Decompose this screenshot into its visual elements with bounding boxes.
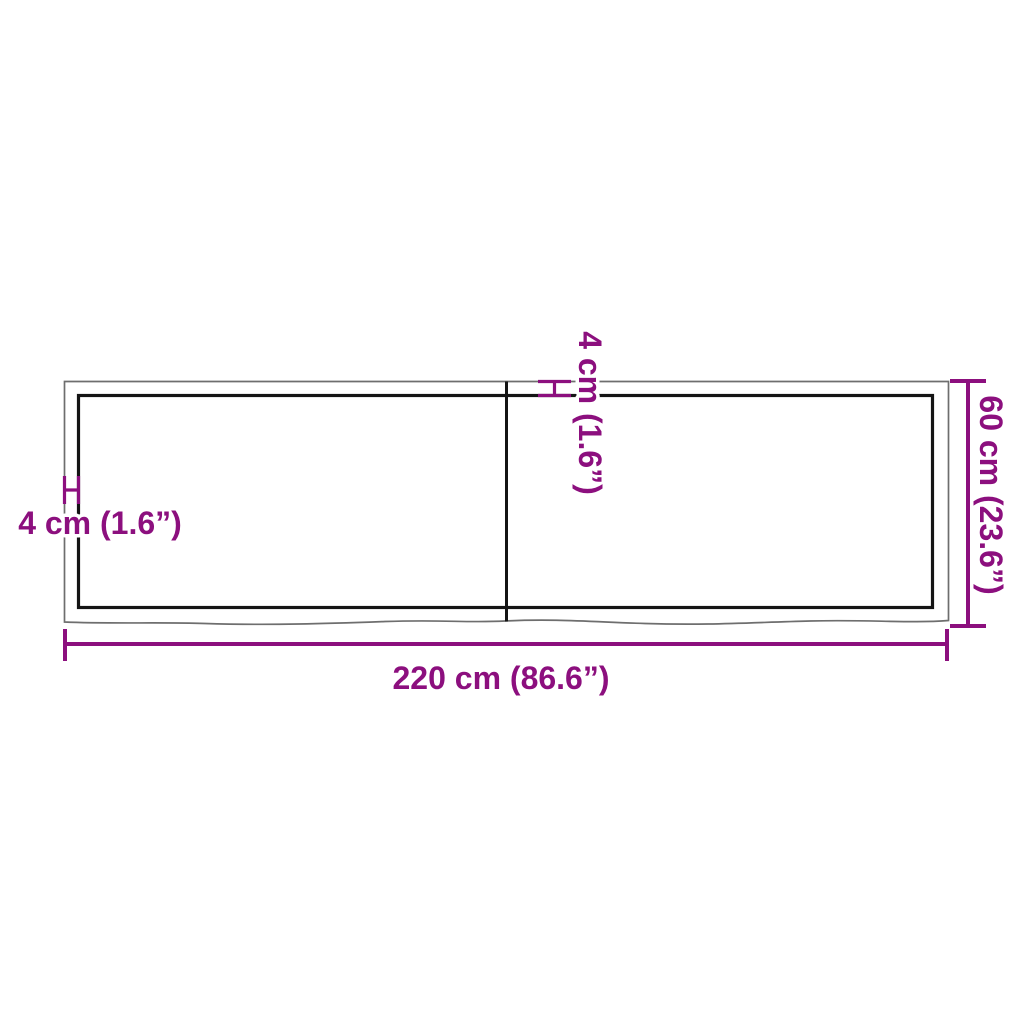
edge-thickness-bracket-left	[63, 476, 80, 504]
edge-thickness-label-top: 4 cm (1.6”)	[572, 331, 608, 495]
edge-thickness-bracket-top	[538, 380, 571, 397]
width-dimension-line	[65, 629, 947, 661]
depth-label: 60 cm (23.6”)	[973, 395, 1009, 594]
table-top-dimension-diagram: 4 cm (1.6”) 4 cm (1.6”) 60 cm (23.6”) 22…	[0, 0, 1024, 1024]
width-label: 220 cm (86.6”)	[392, 660, 609, 696]
product-dimension-image: 4 cm (1.6”) 4 cm (1.6”) 60 cm (23.6”) 22…	[0, 0, 1024, 1024]
edge-thickness-label-left: 4 cm (1.6”)	[18, 505, 182, 541]
